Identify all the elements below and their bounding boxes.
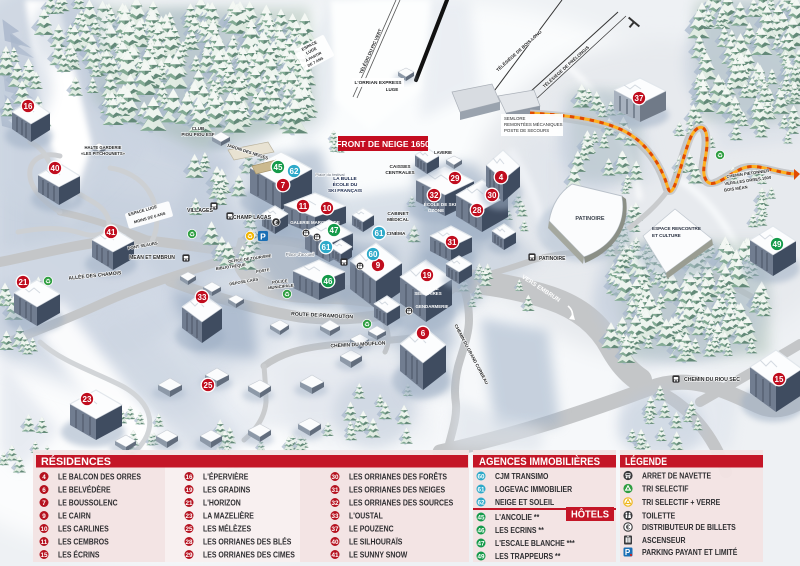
svg-text:L'OUSTAL: L'OUSTAL [349, 511, 383, 520]
svg-text:ARRET DE NAVETTE: ARRET DE NAVETTE [642, 471, 712, 480]
svg-text:CENTRALES: CENTRALES [385, 170, 415, 176]
svg-text:CJM TRANSIMO: CJM TRANSIMO [495, 472, 548, 481]
svg-text:31: 31 [448, 238, 457, 247]
svg-text:AGENCES IMMOBILIÈRES: AGENCES IMMOBILIÈRES [479, 455, 600, 468]
svg-text:28: 28 [473, 206, 482, 215]
svg-text:CLUB: CLUB [192, 126, 205, 131]
svg-text:7: 7 [281, 181, 286, 190]
svg-text:ÉCOLE DE SKI: ÉCOLE DE SKI [424, 200, 456, 207]
svg-text:25: 25 [204, 381, 213, 390]
svg-text:40: 40 [331, 539, 339, 546]
svg-text:TRI SELECTIF + VERRE: TRI SELECTIF + VERRE [642, 498, 721, 507]
svg-text:61: 61 [375, 229, 384, 238]
svg-text:49: 49 [477, 553, 485, 560]
svg-text:37: 37 [331, 526, 339, 533]
svg-text:61: 61 [477, 486, 485, 493]
svg-text:49: 49 [773, 240, 782, 249]
svg-text:CHEMIN DU RIOU SEC: CHEMIN DU RIOU SEC [684, 377, 740, 383]
svg-text:62: 62 [290, 167, 299, 176]
svg-text:SKI FRANÇAIS: SKI FRANÇAIS [328, 188, 363, 194]
svg-text:33: 33 [198, 293, 207, 302]
svg-text:SEMLORE: SEMLORE [504, 116, 526, 121]
svg-text:LE SILHOURAÏS: LE SILHOURAÏS [349, 537, 403, 546]
svg-text:21: 21 [19, 278, 28, 287]
svg-text:4: 4 [499, 173, 504, 182]
svg-text:LES CEMBROS: LES CEMBROS [58, 537, 109, 546]
svg-text:41: 41 [331, 552, 339, 559]
svg-text:ET CULTURE: ET CULTURE [652, 233, 681, 238]
svg-text:6: 6 [42, 487, 46, 494]
svg-text:29: 29 [451, 174, 460, 183]
svg-text:47: 47 [330, 226, 339, 235]
svg-text:ASCENSEUR: ASCENSEUR [642, 536, 686, 545]
svg-text:PATINOIRE: PATINOIRE [539, 256, 566, 262]
svg-text:LES MÉLÈZES: LES MÉLÈZES [203, 524, 252, 533]
svg-text:TOILETTE: TOILETTE [642, 511, 676, 520]
svg-text:CAISSES: CAISSES [389, 164, 411, 170]
svg-text:L'ÉPERVIÈRE: L'ÉPERVIÈRE [203, 472, 249, 481]
svg-text:♻: ♻ [717, 152, 723, 159]
svg-text:23: 23 [83, 395, 92, 404]
svg-text:32: 32 [331, 500, 339, 507]
svg-text:P: P [260, 232, 266, 242]
svg-text:♻: ♻ [45, 278, 51, 285]
svg-text:LE SUNNY SNOW: LE SUNNY SNOW [349, 550, 408, 559]
svg-text:23: 23 [185, 513, 193, 520]
svg-text:PATINOIRE: PATINOIRE [575, 216, 604, 222]
svg-text:60: 60 [369, 250, 378, 259]
svg-text:HALTE GARDERIE: HALTE GARDERIE [85, 145, 122, 150]
svg-text:LES CARLINES: LES CARLINES [58, 524, 109, 533]
svg-text:LES ORRIANES DES BLÉS: LES ORRIANES DES BLÉS [203, 537, 292, 546]
svg-text:62: 62 [477, 499, 485, 506]
svg-text:MEAN ET EMBRUN: MEAN ET EMBRUN [129, 255, 175, 261]
svg-text:CABINET: CABINET [387, 211, 408, 217]
svg-text:19: 19 [423, 271, 432, 280]
svg-text:16: 16 [185, 474, 193, 481]
svg-text:♻: ♻ [284, 291, 290, 298]
svg-text:LUGE: LUGE [386, 87, 399, 92]
svg-text:Place d'accueil: Place d'accueil [286, 252, 315, 257]
svg-text:31: 31 [331, 487, 339, 494]
svg-text:6: 6 [421, 329, 426, 338]
svg-text:30: 30 [331, 474, 339, 481]
svg-text:LA MAZELIÈRE: LA MAZELIÈRE [203, 511, 254, 520]
svg-text:DISTRIBUTEUR DE BILLETS: DISTRIBUTEUR DE BILLETS [642, 523, 736, 532]
svg-text:L'ESCALE BLANCHE ***: L'ESCALE BLANCHE *** [495, 539, 575, 548]
svg-text:45: 45 [274, 163, 283, 172]
svg-text:♻: ♻ [364, 321, 370, 328]
svg-text:POSTE DE SECOURS: POSTE DE SECOURS [504, 128, 549, 133]
svg-text:47: 47 [477, 540, 485, 547]
svg-text:♻: ♻ [247, 233, 253, 240]
svg-text:TRI SELECTIF: TRI SELECTIF [642, 484, 689, 493]
svg-text:VILLAGES: VILLAGES [187, 208, 213, 214]
svg-text:60: 60 [477, 473, 485, 480]
svg-text:10: 10 [40, 526, 48, 533]
svg-text:7: 7 [42, 500, 46, 507]
svg-text:P: P [625, 548, 631, 557]
svg-text:Place du festival: Place du festival [315, 172, 344, 177]
svg-text:OZONE: OZONE [428, 208, 444, 213]
svg-text:9: 9 [42, 513, 46, 520]
svg-text:REMONTÉES MÉCANIQUES: REMONTÉES MÉCANIQUES [504, 122, 563, 127]
svg-text:LE POUZENC: LE POUZENC [349, 524, 394, 533]
svg-text:L'HORIZON: L'HORIZON [203, 498, 241, 507]
svg-text:«LES PITCHOUNETS»: «LES PITCHOUNETS» [81, 151, 126, 156]
svg-text:LES ORRIANES DES NEIGES: LES ORRIANES DES NEIGES [349, 485, 446, 494]
svg-text:LES ORRIANES DES SOURCES: LES ORRIANES DES SOURCES [349, 498, 454, 507]
svg-text:ESPACE RENCONTRE: ESPACE RENCONTRE [652, 226, 701, 231]
svg-text:25: 25 [185, 526, 193, 533]
svg-text:30: 30 [488, 191, 497, 200]
svg-text:9: 9 [376, 261, 381, 270]
svg-text:LÉGENDE: LÉGENDE [625, 455, 667, 468]
svg-text:15: 15 [40, 552, 48, 559]
svg-text:32: 32 [430, 191, 439, 200]
svg-text:LE CAIRN: LE CAIRN [58, 511, 91, 520]
svg-text:CHAMP LACAS: CHAMP LACAS [233, 215, 272, 221]
svg-text:21: 21 [185, 500, 193, 507]
svg-text:LES ECRINS **: LES ECRINS ** [495, 526, 545, 535]
svg-text:RÉSIDENCES: RÉSIDENCES [41, 455, 111, 468]
svg-text:LES ORRIANES DES CIMES: LES ORRIANES DES CIMES [203, 550, 295, 559]
svg-text:LE BELVÉDÈRE: LE BELVÉDÈRE [58, 485, 111, 494]
svg-text:L'ANCOLIE **: L'ANCOLIE ** [495, 513, 540, 522]
svg-text:41: 41 [107, 228, 116, 237]
svg-text:LE BOUSSOLENC: LE BOUSSOLENC [58, 498, 118, 507]
svg-text:PIOU PIOU ESF: PIOU PIOU ESF [181, 132, 215, 137]
svg-text:LOGEVAC IMMOBILIER: LOGEVAC IMMOBILIER [495, 485, 572, 494]
svg-text:46: 46 [477, 527, 485, 534]
svg-text:16: 16 [24, 102, 33, 111]
svg-text:37: 37 [635, 94, 644, 103]
svg-text:61: 61 [322, 243, 331, 252]
svg-text:11: 11 [299, 202, 308, 211]
svg-text:33: 33 [331, 513, 339, 520]
svg-text:LAVERIE: LAVERIE [434, 150, 452, 155]
svg-text:11: 11 [41, 539, 48, 546]
svg-text:45: 45 [477, 514, 485, 521]
svg-text:LES ÉCRINS: LES ÉCRINS [58, 550, 100, 559]
svg-text:SÉMINAIRES: SÉMINAIRES [414, 291, 441, 296]
svg-text:LES ORRIANES DES FORÊTS: LES ORRIANES DES FORÊTS [349, 472, 448, 481]
svg-text:28: 28 [185, 539, 193, 546]
svg-text:15: 15 [775, 375, 784, 384]
svg-text:LES TRAPPEURS **: LES TRAPPEURS ** [495, 552, 561, 561]
svg-text:FRONT DE NEIGE 1650: FRONT DE NEIGE 1650 [336, 139, 430, 149]
svg-text:19: 19 [185, 487, 193, 494]
svg-text:10: 10 [323, 204, 332, 213]
svg-text:GENDARMERIE: GENDARMERIE [416, 304, 449, 309]
svg-text:NEIGE ET SOLEIL: NEIGE ET SOLEIL [495, 498, 554, 507]
svg-text:€: € [274, 220, 278, 227]
svg-text:46: 46 [324, 277, 333, 286]
svg-text:♻: ♻ [189, 231, 195, 238]
svg-text:40: 40 [51, 164, 60, 173]
svg-text:L'ORRIAN EXPRESS: L'ORRIAN EXPRESS [355, 80, 403, 86]
svg-text:LES GRADINS: LES GRADINS [203, 485, 251, 494]
svg-text:29: 29 [185, 552, 193, 559]
svg-text:PARKING PAYANT ET LIMITÉ: PARKING PAYANT ET LIMITÉ [642, 548, 738, 557]
svg-text:HÔTELS: HÔTELS [571, 508, 609, 521]
svg-text:4: 4 [42, 474, 46, 481]
svg-text:LE BALCON DES ORRES: LE BALCON DES ORRES [58, 472, 142, 481]
